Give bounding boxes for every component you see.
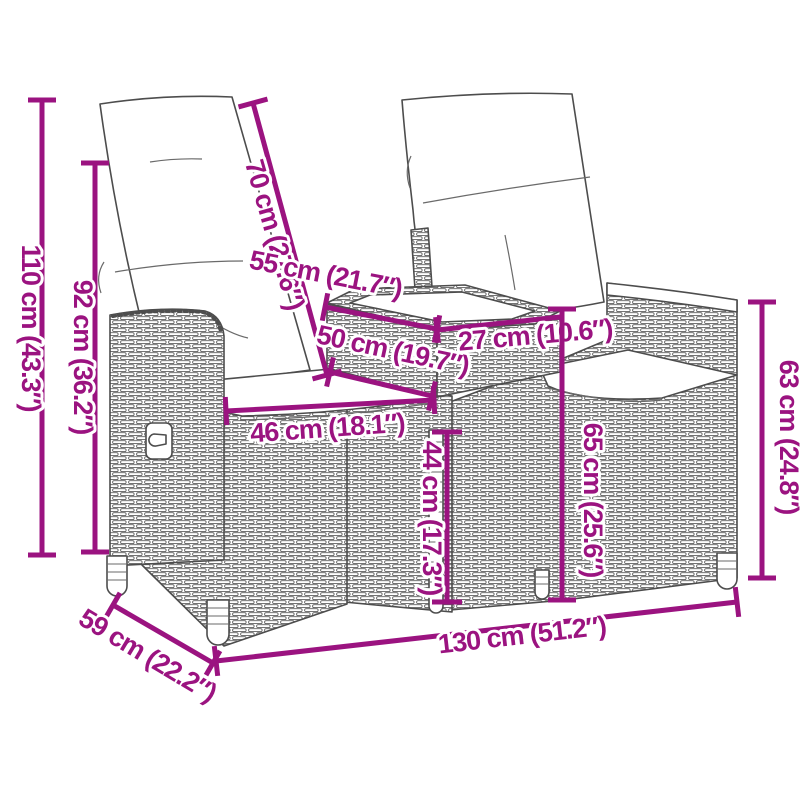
knob-lever	[149, 434, 166, 446]
dimension-label: 130 cm (51.2″)	[437, 611, 608, 660]
dimension-110: 110 cm (43.3″)	[16, 100, 56, 555]
left-armrest	[110, 309, 224, 566]
dimension-label: 110 cm (43.3″)	[16, 244, 46, 411]
cushion-pinch	[99, 262, 104, 293]
dimension-63: 63 cm (24.8″)	[748, 302, 800, 578]
dimension-cap	[436, 317, 439, 343]
diagram-canvas: 110 cm (43.3″) 92 cm (36.2″) 70 cm (27.6…	[0, 0, 800, 800]
product-dimension-diagram: 110 cm (43.3″) 92 cm (36.2″) 70 cm (27.6…	[0, 0, 800, 800]
dimension-92: 92 cm (36.2″)	[68, 163, 109, 552]
dimension-label: 92 cm (36.2″)	[68, 280, 98, 435]
recline-knob	[146, 423, 172, 459]
sofa-leg-front-left	[207, 600, 229, 645]
sofa-leg-front-right	[717, 553, 737, 589]
sofa-leg-back-left	[107, 556, 127, 596]
dimension-label: 63 cm (24.8″)	[774, 360, 800, 515]
dimension-label: 44 cm (17.3″)	[417, 441, 447, 596]
dimension-label: 65 cm (25.6″)	[578, 423, 608, 578]
